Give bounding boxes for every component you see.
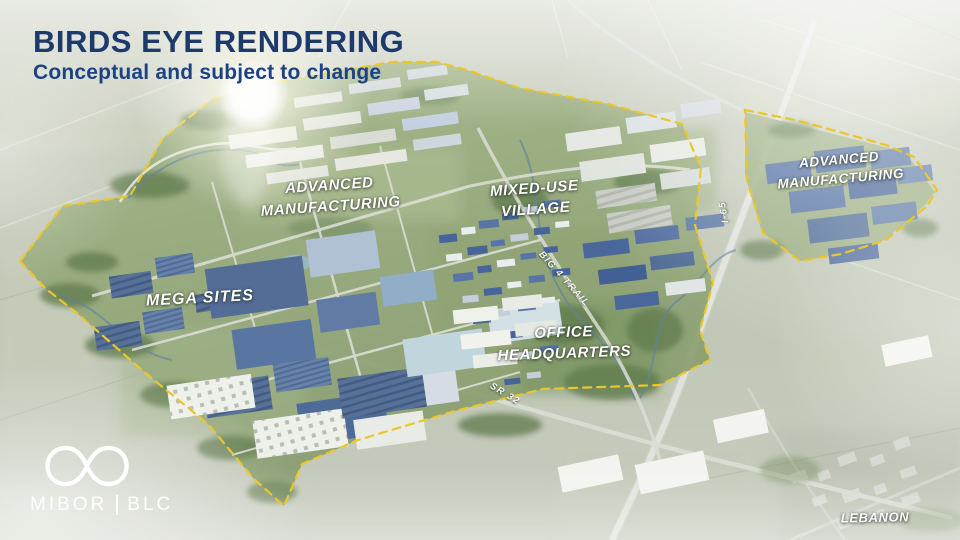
infinity-icon bbox=[44, 444, 130, 488]
label-line: ADVANCED bbox=[284, 174, 374, 197]
page-title: BIRDS EYE RENDERING bbox=[33, 24, 404, 60]
label-line: OFFICE bbox=[534, 323, 593, 342]
mibor-blc-logo: MIBOR BLC bbox=[30, 444, 173, 516]
label-line: MEGA SITES bbox=[146, 287, 255, 310]
label-line: MIXED-USE bbox=[489, 177, 579, 200]
logo-org: MIBOR bbox=[30, 494, 107, 516]
label-lebanon: LEBANON bbox=[841, 508, 910, 527]
logo-text: MIBOR BLC bbox=[30, 494, 173, 516]
logo-unit: BLC bbox=[127, 494, 173, 516]
label-mixed-use-village: MIXED-USE VILLAGE bbox=[489, 175, 580, 223]
birds-eye-rendering-slide: BIRDS EYE RENDERING Conceptual and subje… bbox=[0, 0, 960, 540]
page-subtitle: Conceptual and subject to change bbox=[33, 61, 381, 85]
logo-divider bbox=[116, 495, 118, 515]
label-line: VILLAGE bbox=[501, 199, 571, 221]
label-line: HEADQUARTERS bbox=[497, 343, 631, 365]
label-line: LEBANON bbox=[841, 509, 910, 525]
label-office-headquarters: OFFICE HEADQUARTERS bbox=[497, 320, 632, 367]
